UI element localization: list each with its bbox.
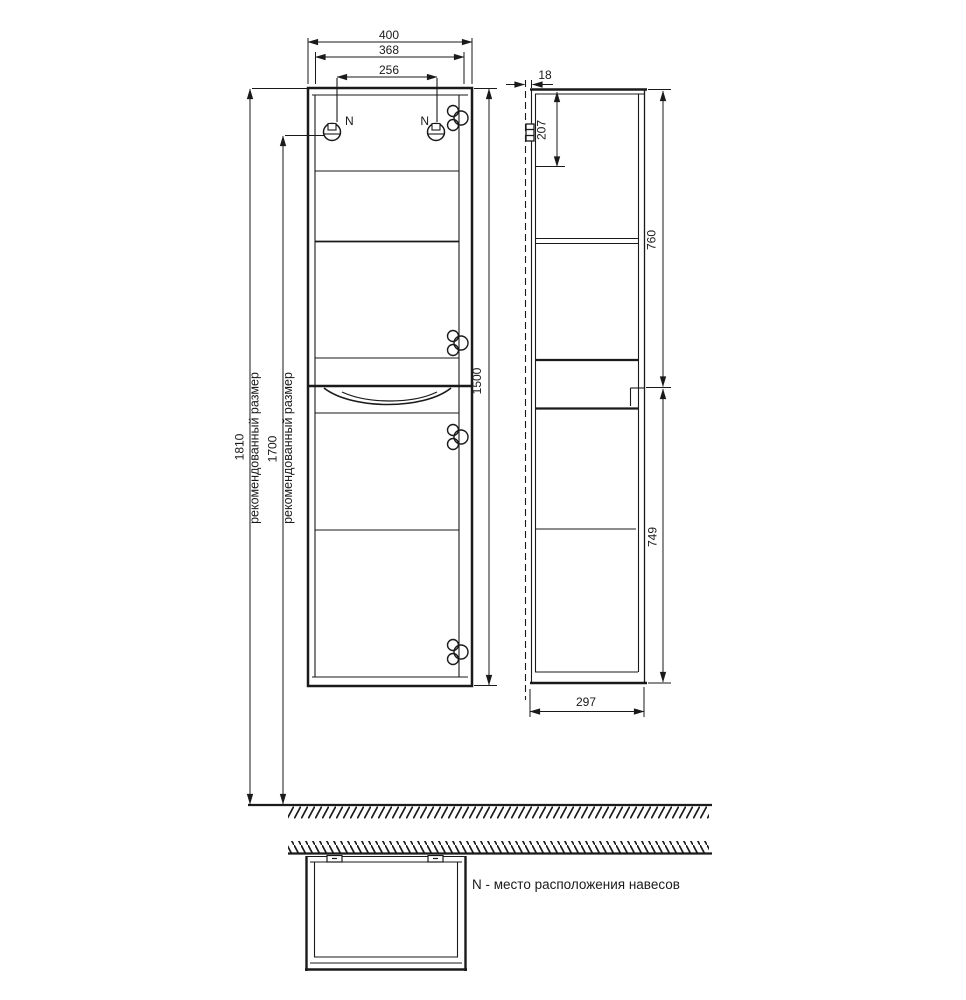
dim-18: 18 [538, 68, 552, 82]
hanger-location-note: N - место расположения навесов [472, 877, 680, 892]
wall-bracket-icon [526, 124, 534, 141]
hanger-icon-left [324, 124, 341, 141]
hinge-icon [448, 106, 469, 131]
dim-297: 297 [576, 695, 596, 709]
dim-1700: 1700 [266, 435, 280, 462]
dim-256: 256 [379, 63, 399, 77]
hanger-label-left: N [345, 114, 354, 128]
floor-line [248, 805, 712, 819]
side-dimensions [506, 80, 671, 717]
hinge-icon [448, 331, 469, 356]
dim-1700-note: рекомендованный размер [281, 372, 295, 524]
hinge-icon [448, 425, 469, 450]
dim-368: 368 [379, 43, 399, 57]
mounting-wall-line [288, 841, 712, 854]
handle-curve-icon [324, 388, 451, 405]
topview-bracket-icon-left [327, 856, 342, 863]
dim-207: 207 [535, 120, 549, 140]
top-view [305, 856, 467, 972]
side-view [526, 80, 648, 700]
dim-749: 749 [646, 527, 660, 547]
drawing-canvas: N N 400 368 256 1500 1810 рекомендованны… [0, 0, 966, 1000]
dim-760: 760 [645, 230, 659, 250]
dim-1810: 1810 [233, 433, 247, 460]
dim-1500: 1500 [470, 367, 484, 394]
dim-400: 400 [379, 28, 399, 42]
hanger-icon-right [428, 124, 445, 141]
hinge-icon [448, 640, 469, 665]
front-view [308, 95, 472, 677]
dim-1810-note: рекомендованный размер [248, 372, 262, 524]
floor-hatch [288, 807, 709, 819]
topview-bracket-icon-right [428, 856, 443, 863]
cabinet-technical-drawing: N N 400 368 256 1500 1810 рекомендованны… [0, 0, 966, 1000]
hanger-label-right: N [420, 114, 429, 128]
wall-hatch [288, 841, 709, 853]
